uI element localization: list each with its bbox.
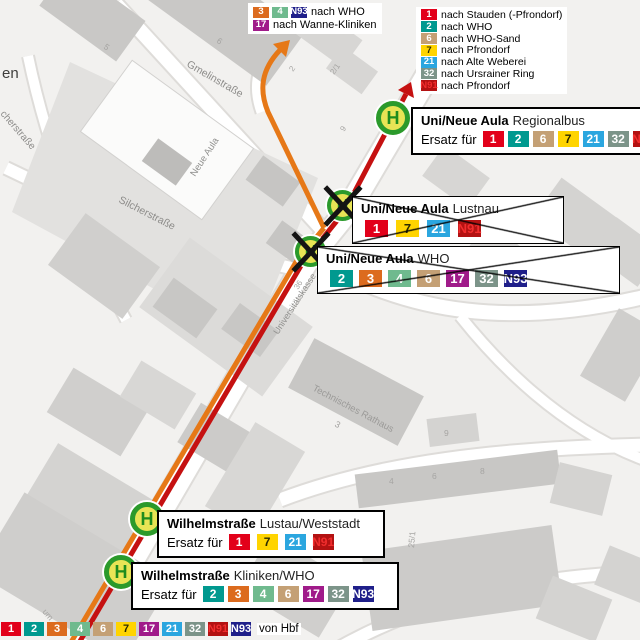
map-label-25-1: 25/1 <box>406 531 417 549</box>
line-badge-N91: N91 <box>633 131 640 147</box>
line-badge-1: 1 <box>365 220 388 237</box>
badge-row: 23461732N93 <box>330 270 611 287</box>
line-badge-4: 4 <box>388 270 411 287</box>
stop-name: Wilhelmstraße <box>167 516 256 531</box>
line-badge-N91: N91 <box>313 534 334 550</box>
map-label-2: 2 <box>287 64 297 73</box>
stop-box-title: WilhelmstraßeLustau/Weststadt <box>167 516 375 531</box>
line-badge-N91: N91 <box>208 622 228 636</box>
stop-box-title: WilhelmstraßeKliniken/WHO <box>141 568 389 583</box>
badge-row: 1721N91 <box>365 220 555 237</box>
line-badges: 21 <box>421 57 437 68</box>
line-badge-1: 1 <box>483 131 504 147</box>
stop-qualifier: Lustau/Weststadt <box>260 516 360 531</box>
line-badges: 23461732N93 <box>203 586 374 602</box>
haltestelle-letter: H <box>387 108 400 129</box>
line-badge-N93: N93 <box>504 270 527 287</box>
map-label-4: 4 <box>389 476 394 486</box>
line-badge-3: 3 <box>359 270 382 287</box>
line-badges: 12672132N91 <box>483 131 640 147</box>
line-badge-7: 7 <box>558 131 579 147</box>
legend-row: 32 nach Ursrainer Ring <box>421 68 562 80</box>
stop-box-wilhelmstrasse-kliniken: WilhelmstraßeKliniken/WHO Ersatz für 234… <box>131 562 399 610</box>
line-badge-4: 4 <box>272 7 288 18</box>
stop-qualifier: Kliniken/WHO <box>234 568 315 583</box>
line-badge-7: 7 <box>257 534 278 550</box>
line-badge-1: 1 <box>1 622 21 636</box>
stop-qualifier: WHO <box>418 251 450 266</box>
street-label-cherstrasse: cherstraße <box>0 109 38 153</box>
legend-label: nach Wanne-Kliniken <box>273 19 377 31</box>
line-badge-21: 21 <box>162 622 182 636</box>
line-badge-N93: N93 <box>231 622 251 636</box>
transit-diversion-map: Gmelinstraße Silcherstraße cherstraße en… <box>0 0 640 640</box>
line-badges: 1721N91 <box>229 534 334 550</box>
line-badge-N93: N93 <box>291 7 307 18</box>
line-badges: 17 <box>253 20 269 31</box>
legend-row: 17 nach Wanne-Kliniken <box>253 19 377 31</box>
stop-box-lustnau-closed: Uni/Neue AulaLustnau 1721N91 <box>352 196 564 244</box>
legend-top-left: 34N93 nach WHO 17 nach Wanne-Kliniken <box>248 3 382 34</box>
stop-box-title: Uni/Neue AulaWHO <box>326 251 611 266</box>
line-badge-17: 17 <box>446 270 469 287</box>
haltestelle-letter: H <box>141 509 154 530</box>
ersatz-row: Ersatz für 1721N91 <box>167 534 375 550</box>
stop-name: Uni/Neue Aula <box>326 251 414 266</box>
line-badge-32: 32 <box>185 622 205 636</box>
map-label-en: en <box>2 65 19 82</box>
stop-symbol-uni-neue-aula-regionalbus: H <box>376 101 410 135</box>
line-badge-32: 32 <box>421 68 437 79</box>
line-badge-N91: N91 <box>421 80 437 91</box>
line-badge-17: 17 <box>253 20 269 31</box>
line-badge-6: 6 <box>278 586 299 602</box>
legend-row: 1 nach Stauden (-Pfrondorf) <box>421 9 562 21</box>
line-badges: 23461732N93 <box>330 270 527 287</box>
bottom-line-bar: 123467172132N91N93 von Hbf <box>1 622 301 636</box>
line-badge-6: 6 <box>533 131 554 147</box>
line-badge-2: 2 <box>330 270 353 287</box>
line-badge-3: 3 <box>47 622 67 636</box>
legend-row: 7 nach Pfrondorf <box>421 44 562 56</box>
ersatz-row: Ersatz für 12672132N91 <box>421 131 640 147</box>
line-badges: 1 <box>421 9 437 20</box>
line-badge-6: 6 <box>93 622 113 636</box>
line-badge-21: 21 <box>421 57 437 68</box>
legend-label: nach Stauden (-Pfrondorf) <box>441 9 562 21</box>
line-badge-1: 1 <box>421 9 437 20</box>
stop-box-title: Uni/Neue AulaRegionalbus <box>421 113 640 128</box>
line-badge-21: 21 <box>583 131 604 147</box>
stop-box-regionalbus: Uni/Neue AulaRegionalbus Ersatz für 1267… <box>411 107 640 155</box>
line-badge-17: 17 <box>303 586 324 602</box>
legend-row: N91 nach Pfrondorf <box>421 80 562 92</box>
legend-label: nach WHO <box>441 21 492 33</box>
bottom-bar-label: von Hbf <box>257 623 301 635</box>
map-label-6b: 6 <box>432 471 437 481</box>
line-badge-17: 17 <box>139 622 159 636</box>
line-badges: N91 <box>421 80 437 91</box>
ersatz-label: Ersatz für <box>167 535 223 550</box>
ersatz-label: Ersatz für <box>141 587 197 602</box>
ersatz-row: Ersatz für 23461732N93 <box>141 586 389 602</box>
map-label-9b: 9 <box>444 428 449 438</box>
line-badge-7: 7 <box>421 45 437 56</box>
line-badge-6: 6 <box>417 270 440 287</box>
line-badge-N93: N93 <box>353 586 374 602</box>
line-badge-32: 32 <box>475 270 498 287</box>
line-badge-32: 32 <box>608 131 629 147</box>
stop-name: Uni/Neue Aula <box>421 113 509 128</box>
line-badge-2: 2 <box>203 586 224 602</box>
line-badge-7: 7 <box>396 220 419 237</box>
stop-box-who-closed: Uni/Neue AulaWHO 23461732N93 <box>317 246 620 294</box>
line-badges: 123467172132N91N93 <box>1 622 251 636</box>
line-badges: 32 <box>421 68 437 79</box>
stop-qualifier: Lustnau <box>453 201 499 216</box>
line-badges: 34N93 <box>253 7 307 18</box>
line-badge-3: 3 <box>228 586 249 602</box>
stop-name: Wilhelmstraße <box>141 568 230 583</box>
haltestelle-icon: H <box>376 101 410 135</box>
line-badge-7: 7 <box>116 622 136 636</box>
stop-box-wilhelmstrasse-lustau: WilhelmstraßeLustau/Weststadt Ersatz für… <box>157 510 385 558</box>
line-badge-21: 21 <box>427 220 450 237</box>
haltestelle-letter: H <box>115 562 128 583</box>
stop-name: Uni/Neue Aula <box>361 201 449 216</box>
ersatz-label: Ersatz für <box>421 132 477 147</box>
legend-row: 6 nach WHO-Sand <box>421 33 562 45</box>
stop-box-title: Uni/Neue AulaLustnau <box>361 201 555 216</box>
legend-label: nach WHO <box>311 6 365 18</box>
stop-qualifier: Regionalbus <box>513 113 585 128</box>
map-label-9: 9 <box>338 124 348 133</box>
legend-label: nach Ursrainer Ring <box>441 68 534 80</box>
legend-row: 2 nach WHO <box>421 21 562 33</box>
legend-row: 34N93 nach WHO <box>253 6 377 18</box>
legend-top-right: 1 nach Stauden (-Pfrondorf) 2 nach WHO 6… <box>416 7 567 94</box>
legend-row: 21 nach Alte Weberei <box>421 56 562 68</box>
line-badge-32: 32 <box>328 586 349 602</box>
line-badge-1: 1 <box>229 534 250 550</box>
line-badge-2: 2 <box>421 21 437 32</box>
line-badge-21: 21 <box>285 534 306 550</box>
line-badges: 6 <box>421 33 437 44</box>
map-label-8: 8 <box>480 466 485 476</box>
legend-label: nach Alte Weberei <box>441 56 526 68</box>
legend-label: nach Pfrondorf <box>441 44 510 56</box>
line-badge-2: 2 <box>24 622 44 636</box>
line-badges: 7 <box>421 45 437 56</box>
line-badge-4: 4 <box>70 622 90 636</box>
line-badge-2: 2 <box>508 131 529 147</box>
line-badges: 1721N91 <box>365 220 481 237</box>
line-badges: 2 <box>421 21 437 32</box>
line-badge-N91: N91 <box>458 220 481 237</box>
map-label-3: 3 <box>333 419 342 430</box>
line-badge-6: 6 <box>421 33 437 44</box>
line-badge-4: 4 <box>253 586 274 602</box>
legend-label: nach WHO-Sand <box>441 33 520 45</box>
legend-label: nach Pfrondorf <box>441 80 510 92</box>
line-badge-3: 3 <box>253 7 269 18</box>
